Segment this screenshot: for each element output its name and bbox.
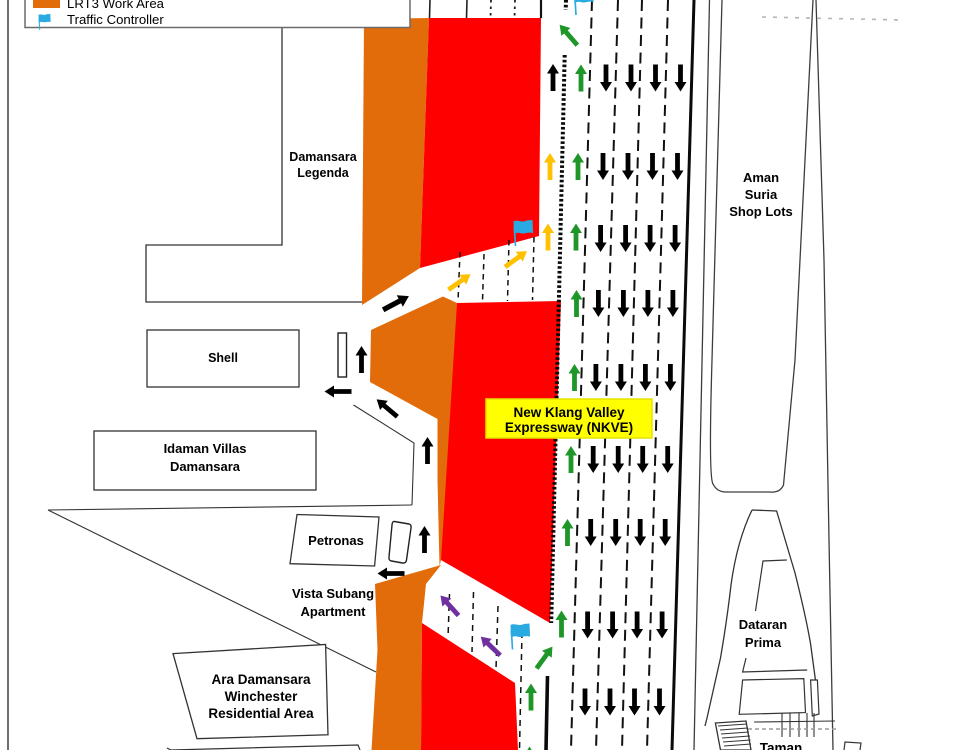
svg-text:Winchester: Winchester — [225, 689, 298, 704]
svg-text:Damansara: Damansara — [170, 459, 241, 474]
svg-text:New Klang Valley: New Klang Valley — [513, 405, 625, 420]
svg-text:Vista Subang: Vista Subang — [292, 586, 374, 601]
svg-text:Expressway (NKVE): Expressway (NKVE) — [505, 420, 633, 435]
svg-text:Petronas: Petronas — [308, 533, 364, 548]
svg-text:Shell: Shell — [208, 351, 238, 365]
svg-text:Traffic Controller: Traffic Controller — [67, 12, 164, 27]
svg-text:Residential Area: Residential Area — [208, 706, 314, 721]
svg-text:Damansara: Damansara — [289, 150, 357, 164]
svg-text:Aman: Aman — [743, 170, 779, 185]
svg-text:Prima: Prima — [745, 635, 782, 650]
svg-text:Legenda: Legenda — [297, 166, 349, 180]
svg-text:Shop Lots: Shop Lots — [729, 204, 793, 219]
svg-text:Suria: Suria — [745, 187, 778, 202]
svg-text:Ara Damansara: Ara Damansara — [211, 672, 311, 687]
svg-text:Apartment: Apartment — [300, 604, 366, 619]
svg-text:Taman: Taman — [760, 741, 803, 750]
svg-text:Dataran: Dataran — [739, 617, 787, 632]
svg-text:LRT3 Work Area: LRT3 Work Area — [67, 0, 165, 11]
svg-text:Idaman Villas: Idaman Villas — [164, 441, 247, 456]
